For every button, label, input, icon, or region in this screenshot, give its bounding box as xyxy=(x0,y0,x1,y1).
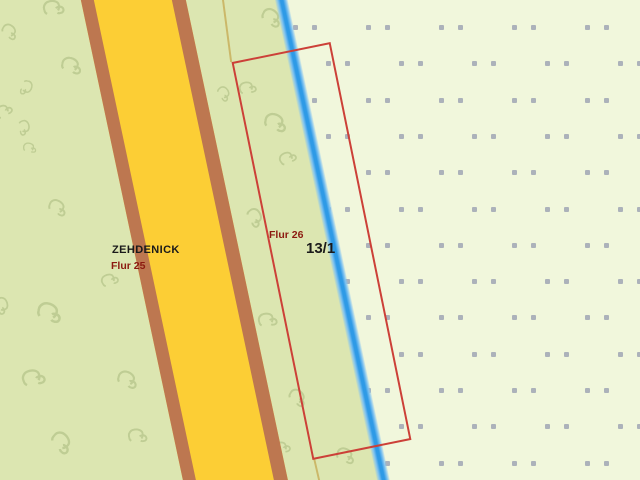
pattern-dot xyxy=(531,243,536,248)
pattern-dot xyxy=(399,61,404,66)
scrub-symbol-icon xyxy=(60,55,85,76)
pattern-dot xyxy=(458,98,463,103)
pattern-dot xyxy=(564,134,569,139)
pattern-dot xyxy=(458,315,463,320)
pattern-dot xyxy=(618,352,623,357)
scrub-symbol-icon xyxy=(127,426,149,445)
pattern-dot xyxy=(439,388,444,393)
pattern-dot xyxy=(585,461,590,466)
scrub-symbol-icon xyxy=(0,21,21,42)
pattern-dot xyxy=(399,279,404,284)
pattern-dot xyxy=(531,388,536,393)
pattern-dot xyxy=(564,61,569,66)
pattern-dot xyxy=(366,25,371,30)
pattern-dot xyxy=(418,424,423,429)
pattern-dot xyxy=(604,315,609,320)
pattern-dot xyxy=(604,243,609,248)
pattern-dot xyxy=(491,207,496,212)
pattern-dot xyxy=(512,388,517,393)
pattern-dot xyxy=(472,279,477,284)
pattern-dot xyxy=(491,61,496,66)
pattern-dot xyxy=(418,61,423,66)
pattern-dot xyxy=(385,243,390,248)
pattern-dot xyxy=(458,388,463,393)
pattern-dot xyxy=(439,98,444,103)
pattern-dot xyxy=(418,279,423,284)
pattern-dot xyxy=(472,61,477,66)
pattern-dot xyxy=(585,25,590,30)
pattern-dot xyxy=(472,207,477,212)
pattern-dot xyxy=(512,461,517,466)
pattern-dot xyxy=(458,25,463,30)
pattern-dot xyxy=(512,243,517,248)
pattern-dot xyxy=(545,61,550,66)
pattern-dot xyxy=(604,461,609,466)
pattern-dot xyxy=(399,352,404,357)
pattern-dot xyxy=(545,134,550,139)
scrub-symbol-icon xyxy=(47,428,78,458)
pattern-dot xyxy=(564,424,569,429)
pattern-dot xyxy=(385,25,390,30)
flur-26-label: Flur 26 xyxy=(269,230,303,242)
pattern-dot xyxy=(564,352,569,357)
pattern-dot xyxy=(439,243,444,248)
pattern-dot xyxy=(585,388,590,393)
pattern-dot xyxy=(512,170,517,175)
scrub-symbol-icon xyxy=(41,0,67,19)
pattern-dot xyxy=(458,461,463,466)
pattern-dot xyxy=(585,315,590,320)
pattern-dot xyxy=(564,279,569,284)
pattern-dot xyxy=(531,170,536,175)
scrub-symbol-icon xyxy=(23,142,37,153)
pattern-dot xyxy=(604,388,609,393)
scrub-symbol-icon xyxy=(46,197,70,219)
scrub-symbol-icon xyxy=(35,301,64,326)
pattern-dot xyxy=(618,279,623,284)
pattern-dot xyxy=(512,25,517,30)
pattern-dot xyxy=(385,98,390,103)
pattern-dot xyxy=(491,134,496,139)
pattern-dot xyxy=(545,207,550,212)
pattern-dot xyxy=(458,243,463,248)
pattern-dot xyxy=(385,170,390,175)
pattern-dot xyxy=(399,207,404,212)
pattern-dot xyxy=(472,352,477,357)
pattern-dot xyxy=(604,25,609,30)
scrub-symbol-icon xyxy=(214,84,234,104)
pattern-dot xyxy=(512,315,517,320)
pattern-dot xyxy=(618,134,623,139)
flur-25-label: Flur 25 xyxy=(111,261,145,273)
pattern-dot xyxy=(472,134,477,139)
scrub-symbol-icon xyxy=(19,365,48,391)
pattern-dot xyxy=(439,315,444,320)
pattern-dot xyxy=(618,61,623,66)
pattern-dot xyxy=(491,279,496,284)
pattern-dot xyxy=(604,170,609,175)
pattern-dot xyxy=(512,98,517,103)
pattern-dot xyxy=(585,243,590,248)
pattern-dot xyxy=(439,170,444,175)
pattern-dot xyxy=(618,207,623,212)
pattern-dot xyxy=(564,207,569,212)
scrub-symbol-icon xyxy=(0,295,13,318)
scrub-symbol-icon xyxy=(0,100,16,123)
pattern-dot xyxy=(418,207,423,212)
pattern-dot xyxy=(545,424,550,429)
pattern-dot xyxy=(418,352,423,357)
scrub-symbol-icon xyxy=(115,369,141,392)
pattern-dot xyxy=(366,98,371,103)
scrub-symbol-icon xyxy=(18,79,33,97)
pattern-dot xyxy=(545,352,550,357)
pattern-dot xyxy=(472,424,477,429)
pattern-dot xyxy=(531,315,536,320)
district-label: ZEHDENICK xyxy=(112,244,180,256)
cadastral-map-canvas[interactable]: ZEHDENICK Flur 25 Flur 26 13/1 xyxy=(0,0,640,480)
pattern-dot xyxy=(399,134,404,139)
pattern-dot xyxy=(345,61,350,66)
pattern-dot xyxy=(618,424,623,429)
pattern-dot xyxy=(585,98,590,103)
pattern-dot xyxy=(439,25,444,30)
pattern-dot xyxy=(312,25,317,30)
pattern-dot xyxy=(531,461,536,466)
pattern-dot xyxy=(545,279,550,284)
pattern-dot xyxy=(531,25,536,30)
pattern-dot xyxy=(366,170,371,175)
parcel-number-label: 13/1 xyxy=(306,241,335,258)
pattern-dot xyxy=(604,98,609,103)
pattern-dot xyxy=(458,170,463,175)
pattern-dot xyxy=(418,134,423,139)
scrub-symbol-icon xyxy=(256,310,279,331)
scrub-symbol-icon xyxy=(15,118,33,137)
pattern-dot xyxy=(491,352,496,357)
pattern-dot xyxy=(531,98,536,103)
pattern-dot xyxy=(491,424,496,429)
pattern-dot xyxy=(585,170,590,175)
pattern-dot xyxy=(439,461,444,466)
